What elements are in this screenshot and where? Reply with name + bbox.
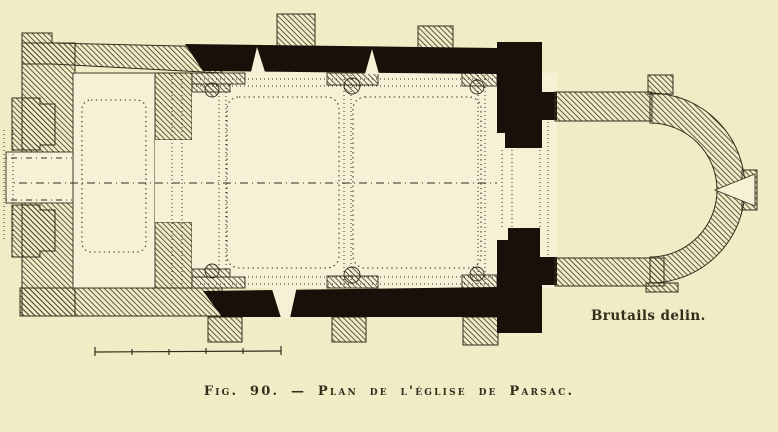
choir-south-wall: [555, 258, 664, 286]
tower-nave-passage: [155, 140, 193, 222]
respond-column-ne: [470, 80, 484, 94]
respond-column-se: [470, 267, 484, 281]
figure-caption: Fig. 90. — Plan de l'église de Parsac.: [204, 384, 574, 399]
west-buttress-north: [12, 98, 55, 150]
apse-step-south: [646, 283, 678, 292]
nave-south-wall: [203, 287, 497, 317]
north-buttress-1: [277, 14, 315, 47]
south-buttress-2: [332, 317, 366, 342]
south-buttress-3: [463, 317, 498, 345]
west-portal-opening: [6, 152, 73, 203]
apse-buttress-north: [648, 75, 673, 94]
respond-column-south-mid: [344, 267, 360, 283]
pilaster-nw: [192, 73, 245, 84]
north-buttress-2: [418, 26, 453, 49]
choir-north-wall: [555, 92, 652, 121]
respond-column-sw: [205, 264, 219, 278]
church-plan-figure: [0, 0, 778, 432]
west-east-wall-south: [155, 222, 192, 288]
nave-north-wall: [185, 44, 497, 74]
draughtsman-credit: Brutails delin.: [591, 308, 706, 324]
tower-room: [73, 73, 155, 288]
west-buttress-south: [12, 205, 55, 257]
south-buttress-1: [208, 317, 242, 342]
respond-column-nw: [205, 83, 219, 97]
pilaster-sw: [192, 277, 245, 288]
book-page: Fig. 90. — Plan de l'église de Parsac. B…: [0, 0, 778, 432]
west-east-wall-north: [155, 73, 192, 140]
